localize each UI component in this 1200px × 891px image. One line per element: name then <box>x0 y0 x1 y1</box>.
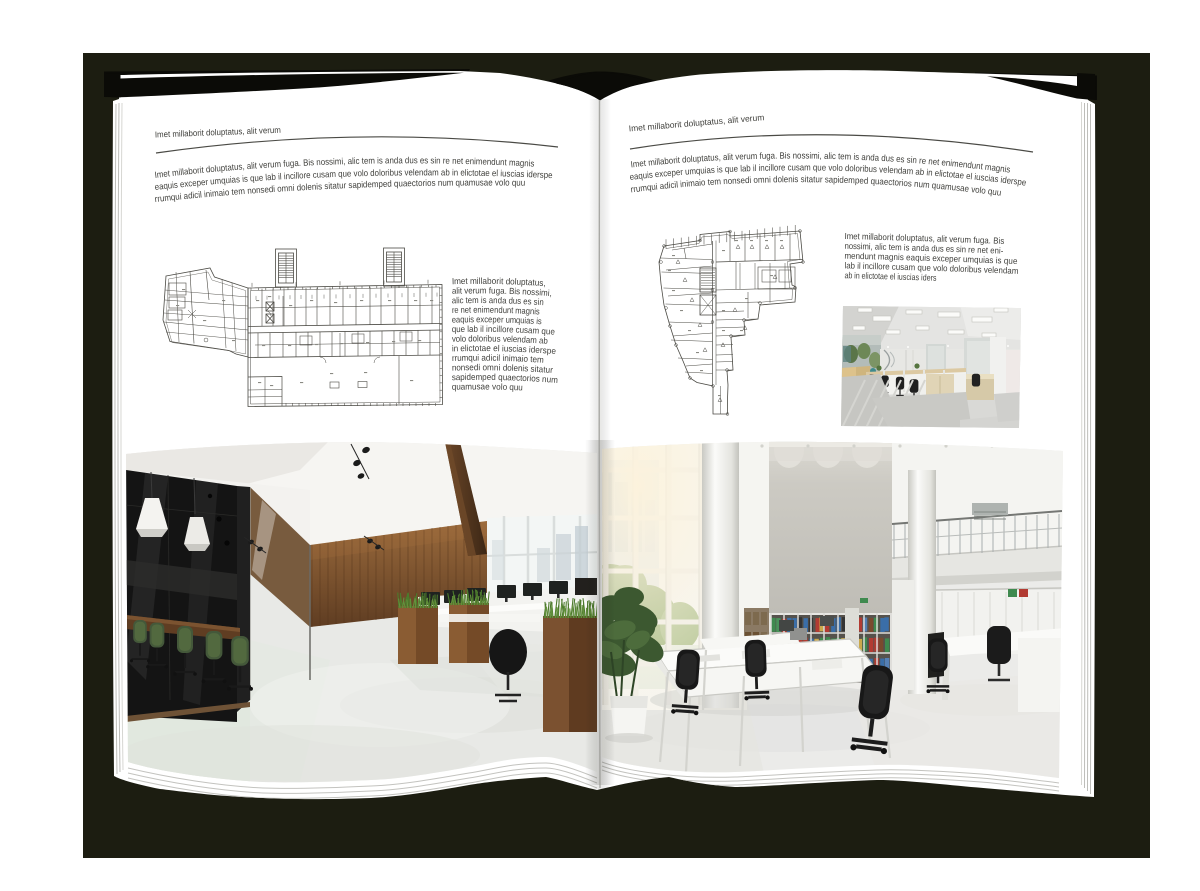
svg-text:quamusae volo quu: quamusae volo quu <box>452 381 523 392</box>
